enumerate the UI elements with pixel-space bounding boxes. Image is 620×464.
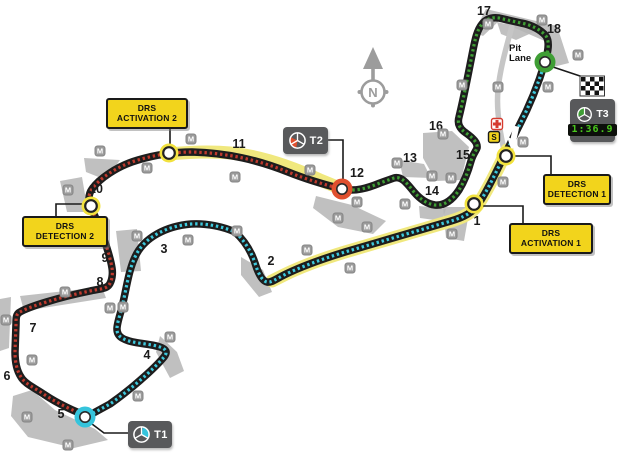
marshal-post: M (345, 263, 356, 274)
drs-activation-2-line2: ACTIVATION 2 (117, 114, 177, 124)
drs-detection-2-line2: DETECTION 2 (36, 232, 94, 242)
turn-number-10: 10 (89, 182, 103, 196)
marshal-post: M (352, 197, 363, 208)
compass-rose: N (358, 47, 389, 108)
sector-clock-icon (132, 425, 151, 444)
turn-number-12: 12 (350, 166, 364, 180)
connector-drs-activation-1 (480, 206, 523, 223)
label-box-drs-detection-1: DRSDETECTION 1 (543, 174, 611, 205)
connector-drs-detection-1 (512, 156, 551, 174)
label-box-drs-detection-2: DRSDETECTION 2 (22, 216, 108, 247)
sector-point-t2 (332, 179, 353, 200)
marshal-post: M (305, 165, 316, 176)
start-line-marker: S (489, 132, 500, 143)
label-box-drs-activation-2: DRSACTIVATION 2 (106, 98, 188, 129)
circuit-map: NS123456789101112131415161718MMMMMMMMMMM… (0, 0, 620, 464)
sector-box-t3-row: T3 (576, 106, 608, 123)
connector-t2 (328, 140, 343, 182)
marshal-post: M (446, 173, 457, 184)
medical-cross-icon (492, 119, 503, 130)
sector-box-label-t3: T3 (596, 108, 608, 120)
turn-number-13: 13 (403, 151, 417, 165)
turn-number-7: 7 (30, 321, 37, 335)
turn-number-9: 9 (102, 251, 109, 265)
marshal-post: M (60, 287, 71, 298)
sector-box-t1: T1 (128, 421, 172, 448)
checkered-flag-icon (580, 76, 605, 96)
marshal-post: M (27, 355, 38, 366)
marshal-post: M (400, 199, 411, 210)
marshal-post: M (22, 412, 33, 423)
sector-point-t3-finish (535, 52, 556, 73)
sector-clock-icon (576, 106, 593, 123)
marshal-post: M (483, 19, 494, 30)
marshal-post: M (63, 185, 74, 196)
sector-clock-icon (288, 131, 307, 150)
drs-detection-1-line2: DETECTION 1 (548, 190, 606, 200)
turn-number-6: 6 (4, 369, 11, 383)
marshal-post: M (133, 391, 144, 402)
marshal-post: M (165, 332, 176, 343)
sector-box-label-t2: T2 (310, 135, 324, 147)
marshal-post: M (543, 82, 554, 93)
marshal-post: M (105, 303, 116, 314)
marshal-post: M (95, 146, 106, 157)
sector-box-t3: T31:36.9 (570, 99, 615, 142)
marshal-post: M (118, 302, 129, 313)
marshal-post: M (438, 129, 449, 140)
turn-number-2: 2 (268, 254, 275, 268)
runoff-area (313, 196, 386, 234)
turn-number-5: 5 (58, 407, 65, 421)
pit-lane-label-line2: Lane (509, 54, 531, 64)
marshal-post: M (333, 213, 344, 224)
turn-number-8: 8 (97, 275, 104, 289)
sector-box-label-t1: T1 (154, 429, 168, 441)
turn-number-15: 15 (456, 148, 470, 162)
marshal-post: M (447, 229, 458, 240)
marshal-post: M (457, 80, 468, 91)
marshal-post: M (362, 222, 373, 233)
turn-number-17: 17 (477, 4, 491, 18)
turn-number-4: 4 (144, 348, 151, 362)
marshal-post: M (518, 137, 529, 148)
drs-point-detection-1 (497, 147, 516, 166)
marshal-post: M (1, 315, 12, 326)
marshal-post: M (186, 134, 197, 145)
drs-point-activation-1 (465, 195, 484, 214)
drs-point-activation-2 (160, 144, 179, 163)
marshal-post: M (498, 177, 509, 188)
marshal-post: M (232, 226, 243, 237)
turn-number-14: 14 (425, 184, 439, 198)
marshal-post: M (142, 163, 153, 174)
marshal-post: M (302, 245, 313, 256)
turn-number-18: 18 (547, 22, 561, 36)
turn-number-1: 1 (474, 214, 481, 228)
turn-number-3: 3 (161, 242, 168, 256)
label-box-drs-activation-1: DRSACTIVATION 1 (509, 223, 593, 254)
sector-point-t1 (75, 407, 96, 428)
marshal-post: M (427, 171, 438, 182)
marshal-post: M (230, 172, 241, 183)
pit-lane-label: PitLane (509, 44, 531, 64)
sector-box-t2: T2 (283, 127, 328, 154)
marshal-post: M (493, 82, 504, 93)
drs-activation-1-line2: ACTIVATION 1 (521, 239, 581, 249)
compass-north-letter: N (368, 85, 377, 100)
marshal-post: M (392, 158, 403, 169)
turn-number-11: 11 (232, 137, 245, 151)
marshal-post: M (573, 50, 584, 61)
marshal-post: M (183, 235, 194, 246)
drs-point-detection-2 (82, 197, 101, 216)
start-letter: S (491, 133, 497, 142)
marshal-post: M (132, 231, 143, 242)
marshal-post: M (537, 15, 548, 26)
sector-time-display: 1:36.9 (568, 124, 616, 136)
marshal-post: M (63, 440, 74, 451)
